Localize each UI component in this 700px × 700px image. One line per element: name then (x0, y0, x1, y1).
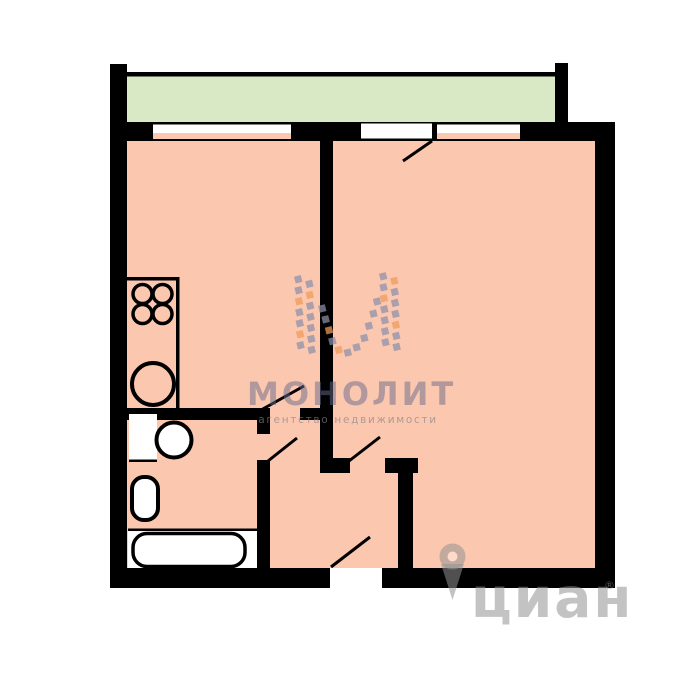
kitchen-window-glass (153, 125, 291, 134)
balcony-door-opening (361, 124, 432, 139)
bottom-wall-right (382, 568, 615, 588)
bath-area-top-edge (128, 529, 257, 532)
floor-plan-drawing (0, 0, 700, 700)
floor-plan: МОНОЛИТ агентство недвижимости циан ® (0, 0, 700, 700)
balcony-floor (125, 76, 555, 122)
counter-right-edge (176, 277, 180, 408)
bathtub (133, 534, 245, 567)
sink-cabinet-edge (129, 460, 157, 463)
kitchen-window-sill (153, 133, 291, 139)
room-divider-wall (320, 140, 333, 473)
balcony-railing (125, 72, 568, 77)
living-window-glass (437, 125, 520, 134)
hall-right-wall (398, 473, 413, 568)
bottom-wall-left (110, 568, 330, 588)
apartment-floor (127, 141, 595, 568)
left-outer-wall (110, 64, 127, 588)
bathroom-wall-lower (257, 460, 270, 568)
balcony-right-pillar (555, 63, 568, 122)
bathroom-sink (157, 423, 192, 458)
sink-cabinet (129, 414, 157, 460)
kitchen-door-jamb (300, 408, 333, 420)
living-window-sill (437, 133, 520, 139)
bathroom-wall-upper (257, 408, 270, 434)
toilet (132, 477, 158, 520)
counter-top-edge (127, 277, 179, 281)
right-outer-wall (595, 122, 615, 588)
room-divider-foot (320, 458, 350, 473)
hall-door-jamb (385, 458, 418, 473)
